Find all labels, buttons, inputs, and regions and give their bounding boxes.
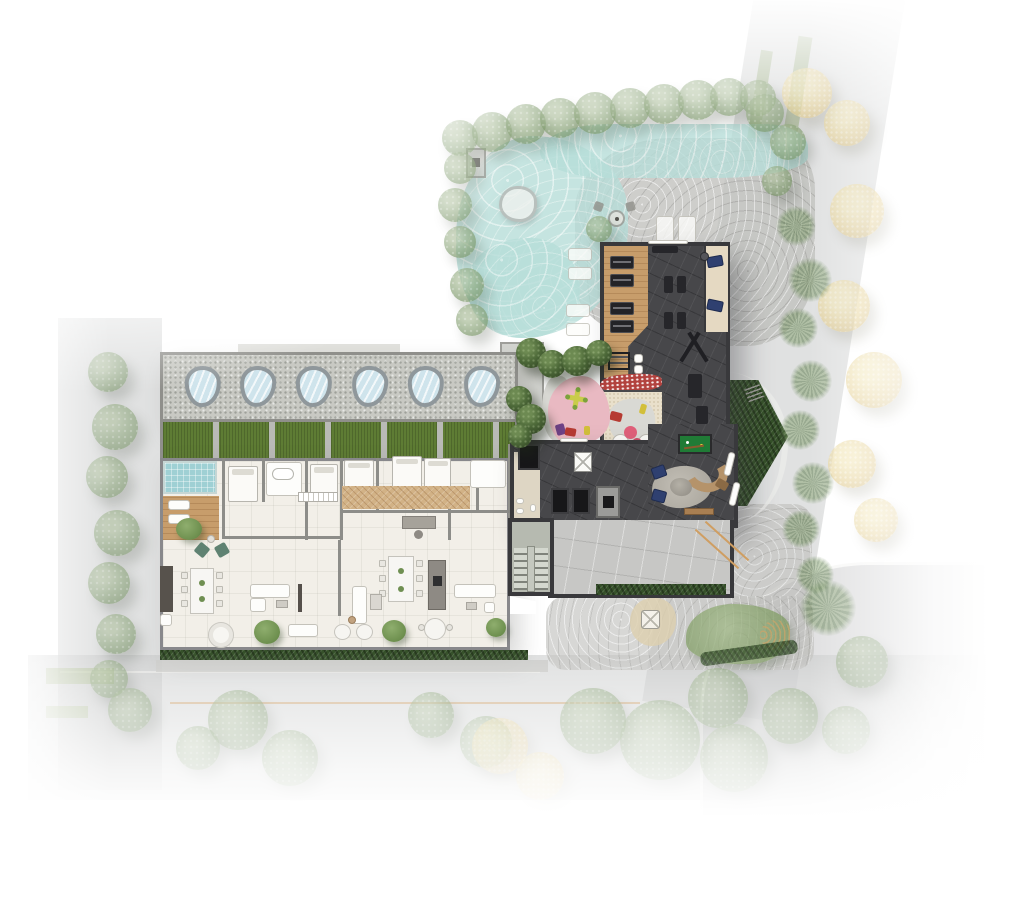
sun-lounger (568, 267, 592, 280)
coffee-table-marble (370, 594, 382, 610)
courtyard-tree (586, 340, 612, 366)
dining-chair (416, 560, 423, 567)
desk-chair (414, 530, 423, 539)
tree (262, 730, 318, 786)
tree (408, 692, 454, 738)
bathtub (272, 468, 294, 480)
sidewalk (156, 660, 548, 672)
tree (770, 124, 806, 160)
dining-chair (379, 575, 386, 582)
centerpiece (199, 596, 205, 602)
centerpiece (398, 568, 404, 574)
wardrobe (298, 492, 338, 502)
weight-bench (610, 320, 634, 333)
round-daybed (208, 622, 234, 648)
terrace-table-set (424, 618, 446, 640)
weight-bench (610, 256, 634, 269)
tree (444, 226, 476, 258)
tree (88, 562, 130, 604)
interior-wall (222, 458, 225, 538)
dining-chair (181, 572, 188, 579)
terrace-plant (382, 620, 406, 642)
fireplace-hearth (603, 496, 614, 508)
tree (822, 706, 870, 754)
play-cross-structure (564, 386, 588, 410)
tree (688, 668, 748, 728)
planter-tree (508, 424, 532, 448)
yellow-tree (854, 498, 898, 542)
interior-wall (262, 458, 265, 502)
sun-lounger (656, 216, 674, 243)
dumbbell-rack (652, 246, 678, 253)
wicker-chair (334, 624, 351, 640)
tree (762, 688, 818, 744)
console-table (288, 624, 318, 637)
driveway-hedge (596, 584, 726, 595)
yellow-tree (828, 440, 876, 488)
tree (86, 456, 128, 498)
wc-fixture (516, 508, 524, 514)
dining-table (190, 568, 214, 614)
spin-bike (677, 276, 686, 293)
terrace-hedge (160, 650, 528, 660)
tree (560, 688, 626, 754)
wc-fixture (530, 504, 536, 512)
lobby-door-frame (560, 438, 588, 442)
elevator-core (551, 488, 569, 514)
tree (438, 188, 472, 222)
terrace-chair (446, 624, 453, 631)
interior-wall (340, 510, 510, 513)
dining-chair (216, 572, 223, 579)
kettlebell (700, 252, 709, 261)
deck-lounger (168, 500, 190, 510)
coffee-table (276, 600, 288, 608)
dining-chair (216, 600, 223, 607)
dining-chair (216, 586, 223, 593)
armchair (484, 602, 495, 613)
weight-bench (610, 274, 634, 287)
dining-chair (416, 590, 423, 597)
centerpiece (199, 580, 205, 586)
bed (392, 456, 422, 488)
yellow-tree (782, 68, 832, 118)
interior-wall (338, 540, 341, 616)
yellow-tree (824, 100, 870, 146)
spa-island (499, 186, 537, 222)
palm-tree (776, 206, 816, 246)
sofa (454, 584, 496, 598)
yellow-tree (830, 184, 884, 238)
billiards-table (678, 434, 712, 454)
tree (96, 614, 136, 654)
console-table (684, 508, 714, 515)
spin-bike (664, 312, 673, 329)
bench-machine (688, 374, 702, 398)
coffee-table (466, 602, 477, 610)
terrace-chair (418, 624, 425, 631)
sun-lounger (566, 323, 590, 336)
palm-tree (782, 510, 820, 548)
kitchen-counter (160, 566, 173, 612)
tree (586, 216, 612, 242)
tree (108, 688, 152, 732)
dining-table (388, 556, 414, 602)
toy-car (564, 427, 576, 437)
stove (433, 576, 442, 586)
toy-seat (584, 426, 590, 435)
lawn-terrace-row (160, 422, 518, 460)
bathroom (470, 460, 506, 488)
tree (700, 724, 768, 792)
terrace-plant (254, 620, 280, 644)
deck-plant (176, 518, 202, 540)
side-table (207, 535, 215, 543)
yellow-tree (846, 352, 902, 408)
tree (88, 352, 128, 392)
palm-tree (792, 462, 834, 504)
tree (456, 304, 488, 336)
pink-ball (624, 426, 637, 439)
palm-tree (800, 580, 856, 636)
tree (92, 404, 138, 450)
tv-wall (298, 584, 302, 612)
wc-fixture (516, 498, 524, 504)
bed (228, 466, 258, 502)
tree (836, 636, 888, 688)
dining-chair (416, 575, 423, 582)
yellow-tree (516, 752, 564, 800)
side-table (348, 616, 356, 624)
tree (762, 166, 792, 196)
palm-tree (778, 308, 818, 348)
palm-tree (790, 360, 832, 402)
sofa (250, 584, 290, 598)
tree (444, 152, 476, 184)
chaise (250, 598, 266, 612)
billiard-ball (686, 441, 689, 444)
spin-bike (677, 312, 686, 329)
tree (94, 510, 140, 556)
plunge-pool (163, 461, 217, 494)
tree (620, 700, 700, 780)
palm-tree (780, 410, 820, 450)
wicker-chair (356, 624, 373, 640)
ramp-wedge (510, 596, 536, 614)
site-plan (0, 0, 1024, 919)
tree (450, 268, 484, 302)
pavilion (641, 610, 660, 629)
sun-lounger (566, 304, 590, 317)
centerpiece (398, 586, 404, 592)
interior-wall (222, 536, 342, 539)
gym-door-frame (648, 240, 688, 244)
refrigerator (160, 614, 172, 626)
stair-landing-rail (527, 546, 535, 592)
desk (402, 516, 436, 529)
hallway-herringbone (342, 486, 470, 509)
dining-chair (181, 586, 188, 593)
storage-room-x (574, 452, 592, 472)
leg-press-machine (696, 406, 708, 424)
dining-chair (181, 600, 188, 607)
tree (176, 726, 220, 770)
sun-lounger (678, 216, 696, 243)
parasol-pole (615, 217, 619, 221)
sun-lounger (568, 248, 592, 261)
gym-storage-box (634, 354, 643, 363)
weight-bench (610, 302, 634, 315)
spin-bike (664, 276, 673, 293)
road-verge (46, 706, 88, 718)
terrace-plant (486, 618, 506, 637)
play-cross-tip (572, 404, 578, 410)
palm-tree (788, 258, 832, 302)
dining-chair (379, 560, 386, 567)
elevator-core (572, 488, 590, 514)
bed (424, 458, 451, 488)
